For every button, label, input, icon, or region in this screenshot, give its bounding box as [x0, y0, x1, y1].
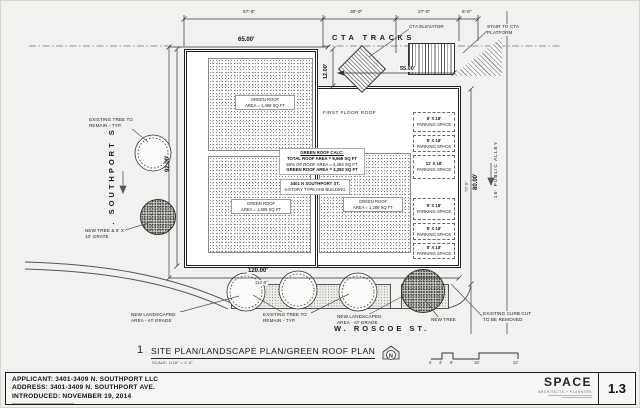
- dim-building-north: 65.00': [237, 37, 255, 43]
- graphic-scale-bar: [431, 353, 518, 359]
- curb-cut-label: EXISTING CURB CUT TO BE REMOVED: [483, 311, 535, 323]
- building-name-note: 3401 N SOUTHPORT ST. 4-STORY TYPE III-B …: [280, 179, 350, 195]
- title-block-info: APPLICANT: 3401-3409 N. SOUTHPORT LLC AD…: [6, 373, 510, 404]
- dim-south-secondary: 114'-6": [255, 280, 268, 285]
- southport-street-label: N. SOUTHPORT ST.: [107, 115, 116, 233]
- firm-tagline: ARCHITECTS + PLANNERS: [510, 390, 592, 394]
- green-roof-area: AREA = 1,506 SQ FT: [234, 207, 288, 213]
- applicant-line: APPLICANT: 3401-3409 N. SOUTHPORT LLC: [12, 376, 510, 384]
- firm-fineprint-bar: [548, 395, 592, 396]
- cta-tracks-label: CTA TRACKS: [332, 33, 415, 42]
- new-tree-grate-label: NEW TREE & 5' X 10' GRATE: [85, 228, 125, 240]
- detail-number: 1: [137, 344, 143, 356]
- green-roof-area: AREA = 1,288 SQ FT: [346, 205, 400, 211]
- scale-tick-1: 4': [439, 360, 442, 365]
- north-arrow-icon: N: [383, 346, 399, 360]
- existing-tree-west-label: EXISTING TREE TO REMAIN - TYP.: [89, 117, 135, 129]
- green-roof-label-north: GREEN ROOF AREA = 1,498 SQ FT: [235, 95, 295, 110]
- scale-tick-3: 16': [474, 360, 479, 365]
- dim-east-secondary: 72'-0": [464, 181, 469, 192]
- green-roof-label-southeast: GREEN ROOF AREA = 1,288 SQ FT: [343, 197, 403, 212]
- drawing-scale-note: SCALE: 1/16" = 1'-0": [152, 360, 193, 365]
- scale-tick-2: 8': [450, 360, 453, 365]
- cta-stair-label: STAIR TO CTA PLATFORM: [487, 24, 527, 36]
- introduced-line: INTRODUCED: NOVEMBER 19, 2014: [12, 393, 510, 401]
- dim-south: 120.00': [247, 268, 269, 274]
- new-landscaped-east-label: NEW LANDSCAPED AREA - AT GRADE: [337, 314, 389, 326]
- scale-tick-4: 32': [513, 360, 518, 365]
- drawing-title: SITE PLAN/LANDSCAPE PLAN/GREEN ROOF PLAN: [151, 346, 375, 359]
- dim-east: 80.00': [473, 173, 479, 191]
- green-roof-label-southwest: GREEN ROOF AREA = 1,506 SQ FT: [231, 199, 291, 214]
- dimension-arrowhead: [337, 71, 344, 76]
- title-block: APPLICANT: 3401-3409 N. SOUTHPORT LLC AD…: [5, 372, 636, 405]
- footer-fineprint-bar: [12, 403, 74, 405]
- dim-top-4: 5'-0": [462, 10, 472, 15]
- building-address: 3401 N SOUTHPORT ST.: [281, 181, 349, 187]
- dim-west: 92.00': [165, 155, 171, 173]
- building-description: 4-STORY TYPE III-B BUILDING: [281, 187, 349, 193]
- sheet-number: 1.3: [598, 373, 635, 404]
- green-roof-area: AREA = 1,498 SQ FT: [238, 103, 292, 109]
- dim-notch: 12.00': [323, 63, 329, 80]
- calc-provided: GREEN ROOF AREA = 4,292 SQ FT: [282, 167, 362, 173]
- firm-logo: SPACE ARCHITECTS + PLANNERS: [510, 373, 598, 404]
- firm-fineprint-bar: [562, 397, 592, 398]
- public-alley-label: 16' PUBLIC ALLEY: [494, 141, 499, 198]
- dim-top-3: 27'-0": [418, 10, 430, 15]
- new-landscaped-west-label: NEW LANDSCAPED AREA - AT GRADE: [131, 312, 183, 324]
- firm-name: SPACE: [510, 376, 592, 388]
- scale-tick-0: 0: [429, 360, 431, 365]
- existing-tree-south-label: EXISTING TREE TO REMAIN - TYP.: [263, 312, 311, 324]
- calc-total: TOTAL ROOF AREA = 8,568 SQ FT: [282, 156, 362, 162]
- site-plan-sheet: 8' X 18' PARKING SPACE 8' X 18' PARKING …: [0, 0, 640, 408]
- new-tree-label: NEW TREE: [431, 317, 456, 323]
- dim-top-2: 30'-0": [350, 10, 362, 15]
- dim-cta: 55.00': [399, 66, 416, 72]
- cta-elevator-label: CTA ELEVATOR: [409, 24, 455, 30]
- green-roof-calc-note: GREEN ROOF CALC: TOTAL ROOF AREA = 8,568…: [279, 148, 365, 175]
- address-line: ADDRESS: 3401-3409 N. SOUTHPORT AVE.: [12, 384, 510, 392]
- first-floor-roof-label: FIRST FLOOR ROOF: [323, 111, 393, 117]
- dim-top-1: 57'-6": [243, 10, 255, 15]
- north-letter: N: [389, 353, 393, 359]
